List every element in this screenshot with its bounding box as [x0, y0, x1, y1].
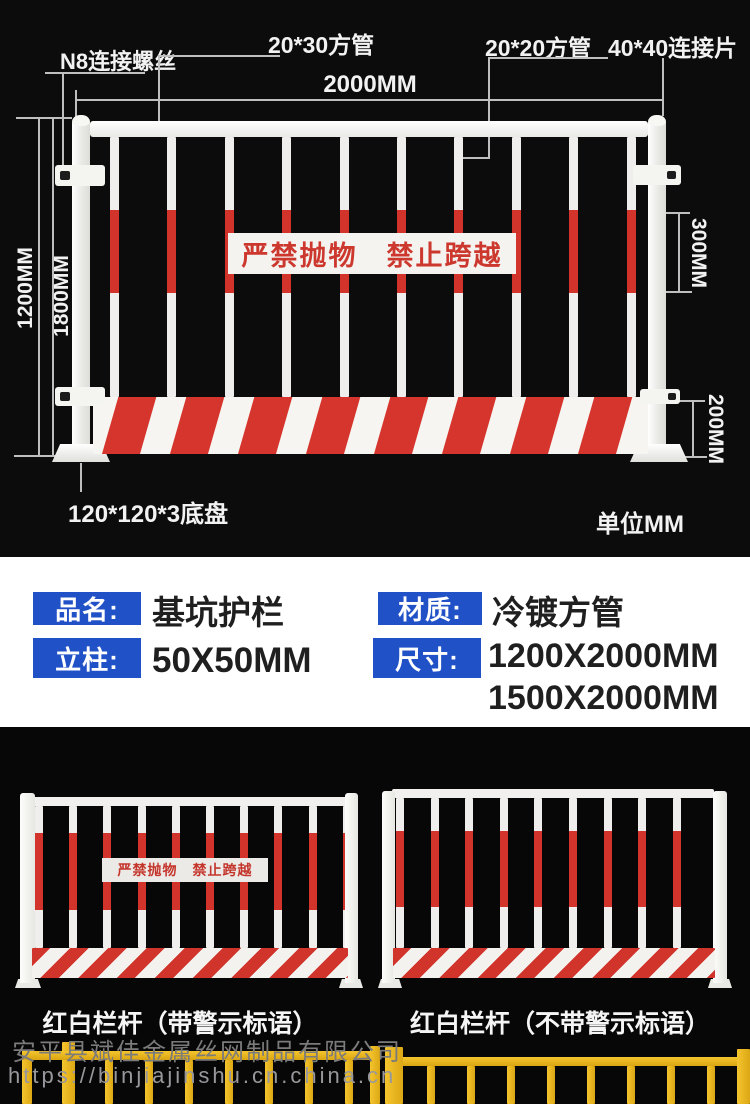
photo-rail: [31, 797, 349, 806]
dim-line-1200: [38, 118, 40, 456]
dim-line-width: [75, 99, 663, 101]
picket-reflective: [627, 210, 636, 293]
picket-reflective: [604, 831, 612, 907]
picket: [168, 397, 226, 454]
picket-reflective: [69, 833, 77, 910]
picket: [507, 1066, 515, 1104]
photos-section: 严禁抛物 禁止跨越 红白栏杆（带警示标语） 红白栏杆（不带警示标语）: [0, 727, 750, 1104]
leader-top-tube-h: [158, 55, 280, 57]
post-cap: [72, 115, 90, 126]
dim-label-panel-height: 1200MM: [14, 242, 38, 334]
bracket-slot: [668, 393, 676, 400]
picket: [707, 1066, 715, 1104]
picket-reflective: [638, 831, 646, 907]
kick-board: [93, 397, 648, 454]
bracket-slot: [667, 171, 676, 179]
connector-bracket: [55, 387, 105, 406]
spec-value-post: 50X50MM: [152, 641, 312, 681]
picket: [576, 397, 634, 454]
dim-label-width: 2000MM: [300, 71, 440, 99]
leader-top-tube-v: [158, 55, 160, 122]
picket-reflective: [569, 210, 578, 293]
photo-kick-board: [32, 948, 348, 978]
leader-picket-tube-h: [488, 57, 608, 59]
picket: [627, 1066, 635, 1104]
watermark-company: 安平县斌佳金属丝网制品有限公司: [12, 1032, 402, 1067]
dim-label-reflective: 300MM: [686, 213, 710, 293]
product-page: N8连接螺丝 20*30方管 20*20方管 40*40连接片 2000MM 1…: [0, 0, 750, 1104]
picket: [372, 397, 430, 454]
picket-reflective: [110, 210, 119, 293]
photo-rail: [392, 789, 714, 798]
part-label-base-plate: 120*120*3底盘: [68, 494, 228, 529]
unit-note: 单位MM: [596, 504, 684, 539]
picket: [440, 397, 498, 454]
warning-sign: 严禁抛物 禁止跨越: [228, 233, 516, 274]
dim-line-1800: [52, 118, 54, 456]
picket: [100, 397, 158, 454]
leader-screw-h: [45, 72, 145, 74]
yellow-post: [737, 1049, 750, 1104]
spec-value-size-1: 1200X2000MM: [488, 637, 719, 676]
picket-reflective: [274, 833, 282, 910]
spec-label-post: 立柱:: [33, 638, 141, 678]
picket: [587, 1066, 595, 1104]
spec-label-material: 材质:: [378, 592, 482, 625]
photo-warning-sign: 严禁抛物 禁止跨越: [102, 858, 268, 882]
spec-value-material: 冷镀方管: [492, 586, 624, 634]
watermark-url: https://binjiajinshu.cn.china.cn: [8, 1063, 396, 1089]
leader-connector: [662, 58, 664, 116]
picket-reflective: [309, 833, 317, 910]
connector-bracket: [55, 165, 105, 186]
picket: [304, 397, 362, 454]
picket-reflective: [431, 831, 439, 907]
picket: [667, 1066, 675, 1104]
picket: [547, 1066, 555, 1104]
picket-reflective: [35, 833, 43, 910]
fence-top-rail: [90, 121, 648, 137]
leader-screw-v: [62, 72, 64, 168]
picket: [236, 397, 294, 454]
post-cap: [648, 115, 666, 126]
dim-line-200: [692, 401, 694, 457]
spec-section: 品名: 基坑护栏 材质: 冷镀方管 立柱: 50X50MM 尺寸: 1200X2…: [0, 557, 750, 727]
photo-kick-board: [393, 948, 715, 978]
picket: [427, 1066, 435, 1104]
picket-reflective: [500, 831, 508, 907]
bracket-slot: [60, 392, 70, 401]
yellow-fence-right: [385, 1047, 750, 1104]
picket-reflective: [534, 831, 542, 907]
yellow-rail: [403, 1057, 745, 1066]
picket-reflective: [396, 831, 404, 907]
leader-base-plate: [80, 463, 82, 492]
picket-reflective: [569, 831, 577, 907]
picket-reflective: [167, 210, 176, 293]
connector-bracket: [633, 165, 681, 185]
picket: [467, 1066, 475, 1104]
photo-fence-no-sign: [378, 787, 735, 992]
photo-fence-with-sign: 严禁抛物 禁止跨越: [15, 787, 365, 992]
spec-value-name: 基坑护栏: [152, 586, 284, 634]
part-label-top-tube: 20*30方管: [268, 26, 374, 60]
picket-reflective: [673, 831, 681, 907]
photo-post: [713, 791, 727, 983]
dim-tick: [75, 90, 77, 118]
ext-line-top: [16, 117, 72, 119]
connector-bracket: [640, 389, 680, 404]
part-label-connector: 40*40连接片: [608, 29, 737, 63]
spec-label-name: 品名:: [33, 592, 141, 625]
picket: [508, 397, 566, 454]
diagram-section: N8连接螺丝 20*30方管 20*20方管 40*40连接片 2000MM 1…: [0, 0, 750, 557]
picket-reflective: [465, 831, 473, 907]
dim-line-300: [678, 213, 680, 292]
bracket-slot: [60, 171, 70, 180]
caption-right: 红白栏杆（不带警示标语）: [400, 1004, 720, 1040]
spec-value-size-2: 1500X2000MM: [488, 679, 719, 718]
spec-label-size: 尺寸:: [373, 638, 481, 678]
